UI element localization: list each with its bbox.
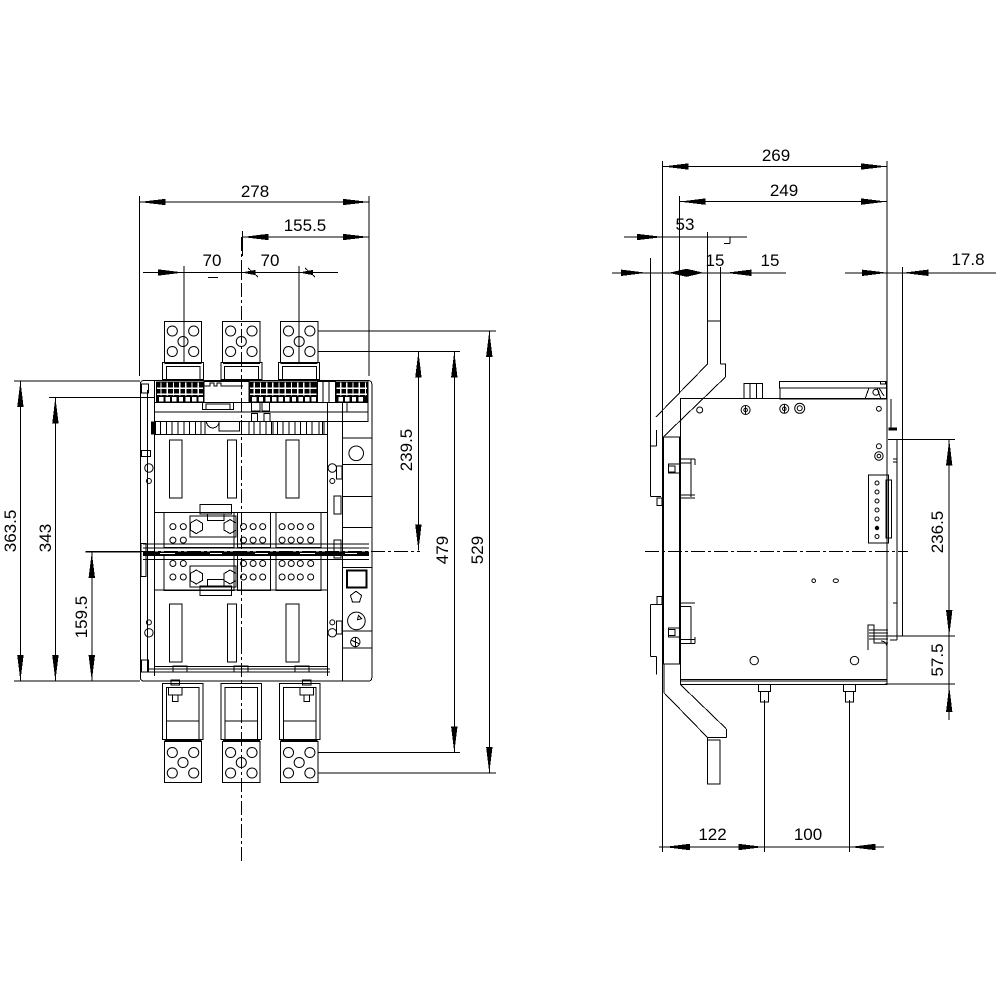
svg-text:155.5: 155.5 <box>284 216 327 235</box>
svg-text:278: 278 <box>241 182 269 201</box>
svg-text:239.5: 239.5 <box>397 429 416 472</box>
svg-text:343: 343 <box>36 524 55 552</box>
svg-text:159.5: 159.5 <box>72 596 91 639</box>
svg-text:529: 529 <box>468 536 487 564</box>
svg-text:57.5: 57.5 <box>928 643 947 676</box>
svg-text:17.8: 17.8 <box>951 250 984 269</box>
svg-text:100: 100 <box>794 825 822 844</box>
svg-text:70: 70 <box>261 251 280 270</box>
svg-text:15: 15 <box>706 251 725 270</box>
svg-text:269: 269 <box>762 146 790 165</box>
svg-text:236.5: 236.5 <box>928 511 947 554</box>
svg-text:249: 249 <box>770 181 798 200</box>
svg-text:122: 122 <box>698 825 726 844</box>
svg-text:15: 15 <box>761 251 780 270</box>
svg-text:70: 70 <box>203 251 222 270</box>
svg-text:479: 479 <box>433 536 452 564</box>
svg-text:53: 53 <box>676 215 695 234</box>
svg-text:363.5: 363.5 <box>1 510 20 553</box>
